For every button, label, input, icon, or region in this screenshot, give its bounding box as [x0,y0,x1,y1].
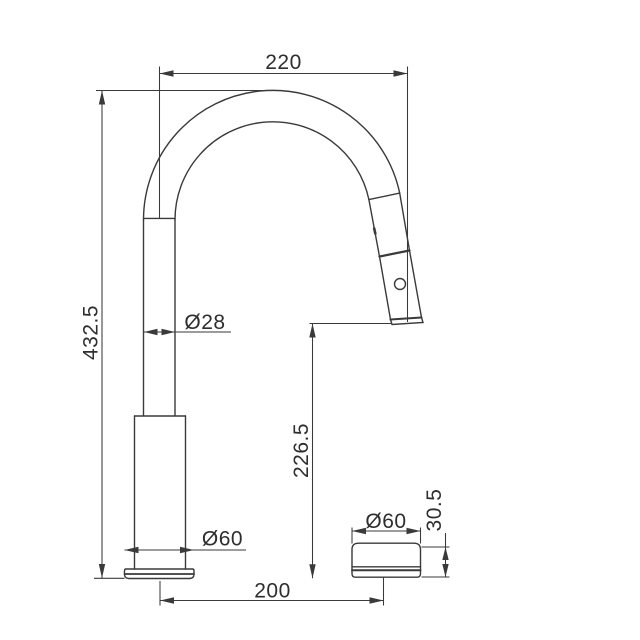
dim-label-center-distance: 200 [254,580,291,603]
dim-label-overall-height: 432.5 [80,305,103,360]
dim-label-spout-reach: 220 [265,51,302,74]
sprayer-head-right-edge [410,251,422,318]
arrow-handle-diameter-right [407,528,421,534]
dim-label-tube-diameter: Ø28 [184,311,225,334]
arrow-overall-height-bottom [99,564,105,578]
spout-inner-arc [175,122,369,220]
sprayer-neck-right-edge [400,193,410,250]
arrow-tube-diameter-left [144,329,158,335]
neck-detail-mark [374,229,375,234]
sprayer-head-left-edge [380,257,391,320]
faucet-outline-group [125,90,424,578]
arrow-spout-reach-right [394,70,408,76]
dim-label-handle-height: 30.5 [423,489,446,532]
arrow-center-distance-left [160,597,174,603]
spout-outer-arc [143,90,399,220]
dim-label-base-diameter: Ø60 [202,528,243,551]
arrow-base-diameter-right [180,547,194,553]
arrow-tube-diameter-right [162,329,176,335]
arrow-outlet-height-bottom [309,564,315,578]
technical-drawing-canvas: 220 432.5 Ø28 226.5 Ø60 200 Ø60 30.5 [0,0,640,640]
sprayer-seam-line [380,251,410,257]
dim-label-handle-diameter: Ø60 [365,510,406,533]
sprayer-button [395,279,406,290]
arrow-center-distance-right [370,597,384,603]
faucet-dimension-drawing: 220 432.5 Ø28 226.5 Ø60 200 Ø60 30.5 [0,0,640,640]
arrow-overall-height-top [99,91,105,105]
handle-knob-body [352,543,421,577]
arrow-base-diameter-left [125,547,139,553]
arrow-handle-height-bottom [442,564,448,577]
arrow-handle-diameter-left [352,528,366,534]
dim-label-outlet-height: 226.5 [290,423,313,478]
sprayer-aerator-face [391,318,422,320]
sprayer-neck-joint-line [369,193,400,200]
arrow-spout-reach-left [160,70,174,76]
arrow-outlet-height-top [309,324,315,338]
arrow-handle-height-top [442,547,448,560]
